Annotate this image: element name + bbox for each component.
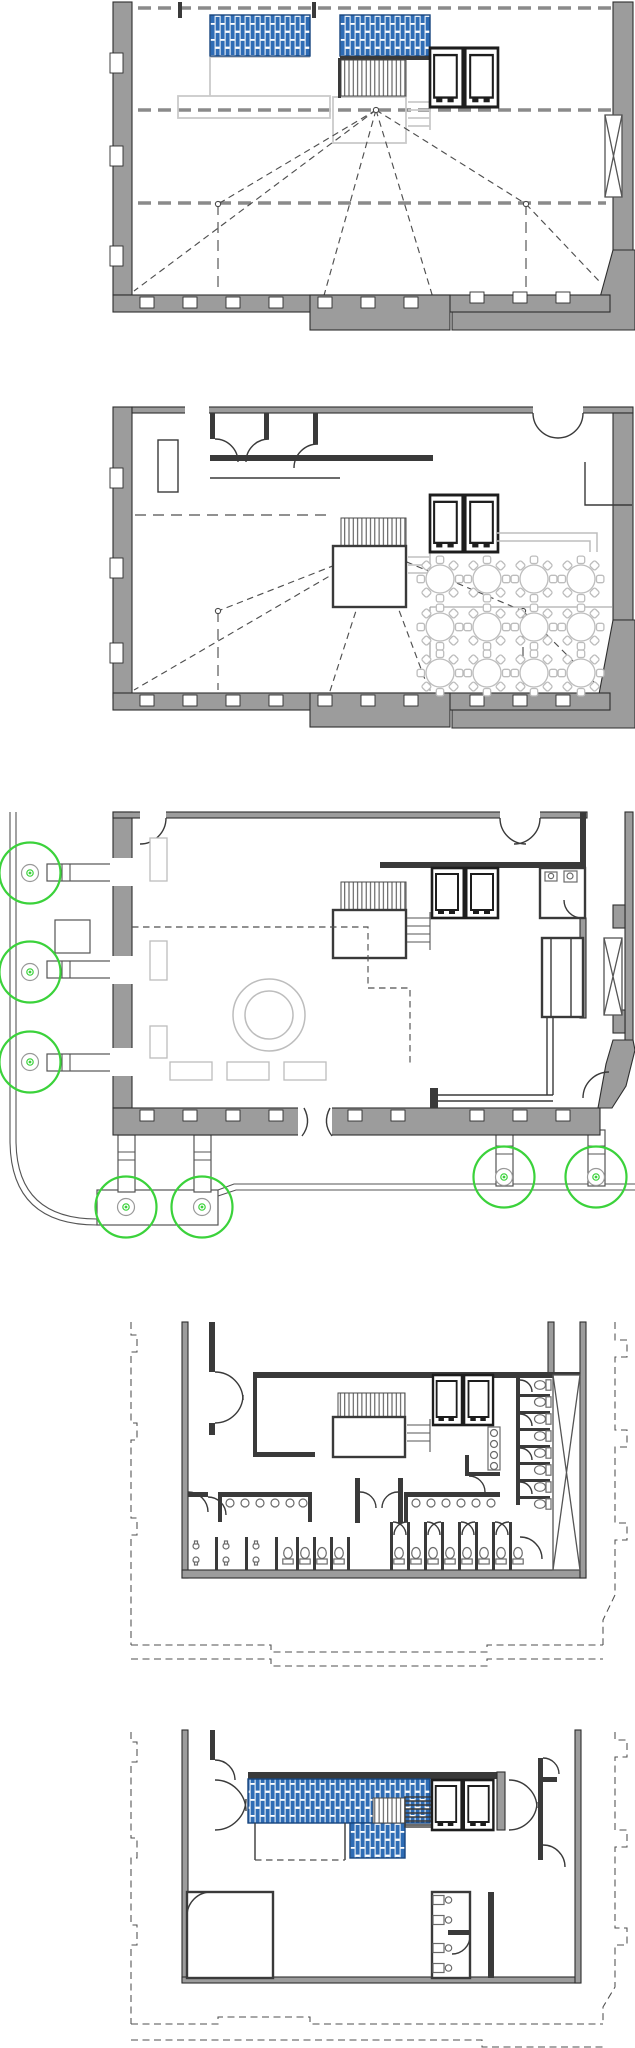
- floor-plan-sheet: [0, 0, 635, 2048]
- sightline-hub: [523, 201, 528, 206]
- elevator-bank: [430, 48, 498, 107]
- shaft-x-brace: [553, 1375, 580, 1570]
- elevator-bank: [432, 1780, 493, 1830]
- banquet-tables: [417, 556, 604, 696]
- sightline-hub: [215, 201, 220, 206]
- sightline-hub: [373, 107, 378, 112]
- stair: [373, 1798, 405, 1823]
- shaft-x-brace: [604, 938, 622, 1015]
- storage-room: [187, 1892, 273, 1978]
- balcony-front-wall: [210, 455, 433, 461]
- skylight-panel: [210, 15, 310, 56]
- skylight-panel: [340, 15, 430, 56]
- elevator-bank: [432, 868, 498, 918]
- building-plans-drawing: [0, 0, 635, 2048]
- elevator-bank: [433, 1375, 493, 1425]
- elevator-bank: [430, 495, 498, 552]
- wc-room: [540, 868, 585, 918]
- shaft-x-brace: [605, 115, 622, 197]
- stair: [338, 58, 406, 98]
